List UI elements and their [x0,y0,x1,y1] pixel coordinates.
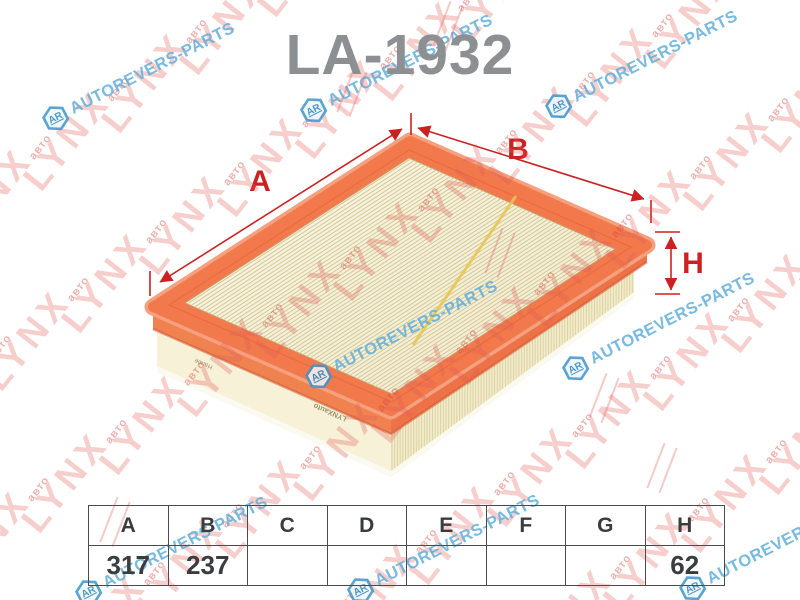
dimension-label-a: A [249,165,271,198]
spec-value-cell [486,546,566,586]
spec-col-header: B [168,506,248,546]
spec-col-header: H [645,506,725,546]
spec-col-header: G [566,506,646,546]
spec-col-header: D [327,506,407,546]
spec-value-cell [248,546,328,586]
spec-value-cell [407,546,487,586]
product-card: Haube LA-1932 AIR FILTER LYNXauto [0,0,800,600]
dimensions-spec-table: A B C D E F G H 317 237 62 [88,505,725,586]
spec-value-cell: 317 [89,546,169,586]
dimension-label-b: B [507,133,529,166]
spec-col-header: C [248,506,328,546]
spec-value-cell: 237 [168,546,248,586]
spec-col-header: F [486,506,566,546]
spec-value-row: 317 237 62 [89,546,725,586]
spec-value-cell [327,546,407,586]
spec-col-header: A [89,506,169,546]
dimension-label-h: H [682,247,704,280]
spec-col-header: E [407,506,487,546]
spec-value-cell [566,546,646,586]
spec-header-row: A B C D E F G H [89,506,725,546]
spec-value-cell: 62 [645,546,725,586]
part-number-title: LA-1932 [0,22,800,88]
